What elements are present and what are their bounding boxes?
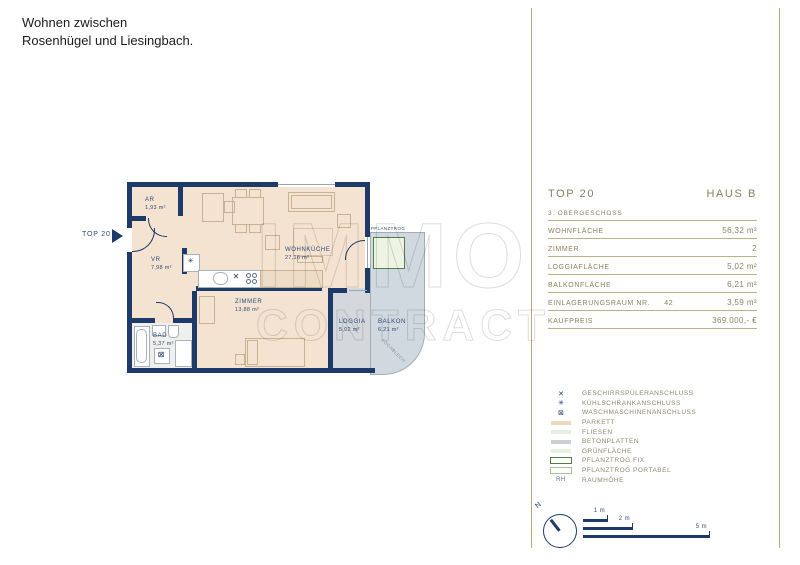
nightstand xyxy=(235,354,245,365)
legend-item-label: KÜHLSCHRANKANSCHLUSS xyxy=(582,400,681,407)
legend-item: BETONPLATTEN xyxy=(549,437,696,447)
wall xyxy=(130,216,146,221)
stove-icon xyxy=(252,279,257,284)
divider-line-left xyxy=(531,8,532,548)
side-table xyxy=(337,214,351,228)
legend-item: GRÜNFLÄCHE xyxy=(549,447,696,457)
north-label: N xyxy=(534,501,542,510)
legend-item-label: WASCHMASCHINENANSCHLUSS xyxy=(582,409,696,416)
info-row-label: BALKONFLÄCHE xyxy=(548,282,611,289)
unit-number: TOP 20 xyxy=(548,188,595,200)
info-row: BALKONFLÄCHE6,21 m² xyxy=(548,275,757,293)
stove-icon xyxy=(246,279,251,284)
scale-bar: 1 m xyxy=(583,519,608,522)
dining-table xyxy=(232,197,264,225)
wall xyxy=(178,185,183,216)
info-row-value: 369.000,- € xyxy=(712,316,757,325)
chair xyxy=(249,224,261,233)
parquet-swatch xyxy=(549,421,573,425)
room-name: ZIMMER xyxy=(235,299,262,305)
balcony-door-glass-line xyxy=(367,237,368,268)
info-row-value: 3,59 m² xyxy=(727,298,757,307)
legend-item: FLIESEN xyxy=(549,427,696,437)
scale-label: 2 m xyxy=(619,516,630,522)
room-area: 27,16 m² xyxy=(285,255,330,263)
counter-extension xyxy=(260,270,323,288)
scale-bar-group: 1 m2 m5 m xyxy=(583,505,723,550)
room-area: 5,02 m² xyxy=(339,327,366,335)
fridge-connection-icon: ✳ xyxy=(183,257,198,265)
info-row-label: KAUFPREIS xyxy=(548,318,593,325)
room-area: 1,93 m² xyxy=(145,205,166,213)
floor-label: 3. OBERGESCHOSS xyxy=(548,210,757,221)
legend-item-label: BETONPLATTEN xyxy=(582,438,639,445)
room-label-loggia: LOGGIA 5,02 m² xyxy=(339,318,366,335)
page-title: Wohnen zwischen Rosenhügel und Liesingba… xyxy=(22,14,193,50)
unit-marker-label: TOP 20 xyxy=(82,231,111,238)
unit-info-rows: WOHNFLÄCHE56,32 m²ZIMMER2LOGGIAFLÄCHE5,0… xyxy=(548,221,757,329)
legend-item-label: PARKETT xyxy=(582,419,615,426)
dishwasher-icon: ✕ xyxy=(229,272,243,281)
green-area-swatch xyxy=(549,449,573,453)
compass-icon xyxy=(543,514,577,548)
room-label-wohnkueche: WOHNKÜCHE 27,16 m² xyxy=(285,246,330,263)
chair xyxy=(235,224,247,233)
legend-item-label: GRÜNFLÄCHE xyxy=(582,448,632,455)
legend: ✕GESCHIRRSPÜLERANSCHLUSS✳KÜHLSCHRANKANSC… xyxy=(549,389,696,485)
compass-needle xyxy=(550,519,561,532)
legend-item: ✕GESCHIRRSPÜLERANSCHLUSS xyxy=(549,389,696,399)
room-name: BAD xyxy=(153,333,167,339)
wall xyxy=(173,318,192,323)
info-row-value: 2 xyxy=(752,244,757,253)
legend-item: PFLANZTROG PORTABEL xyxy=(549,466,696,476)
planter-box xyxy=(373,237,405,269)
room-label-balkon: BALKON 6,21 m² xyxy=(378,318,406,335)
info-row-label: LOGGIAFLÄCHE xyxy=(548,264,610,271)
window-glass-line xyxy=(278,184,335,185)
planter-fixed-swatch xyxy=(549,457,573,464)
wall xyxy=(127,368,375,373)
legend-item-label: FLIESEN xyxy=(582,429,613,436)
wardrobe xyxy=(199,296,215,324)
info-row: EINLAGERUNGSRAUM NR.423,59 m² xyxy=(548,293,757,311)
info-row-value: 6,21 m² xyxy=(727,280,757,289)
info-row-label: WOHNFLÄCHE xyxy=(548,228,604,235)
info-row-label-extra: 42 xyxy=(664,300,673,307)
legend-item: ⊠WASCHMASCHINENANSCHLUSS xyxy=(549,408,696,418)
scale-tick xyxy=(607,515,608,519)
unit-info-panel: TOP 20 HAUS B 3. OBERGESCHOSS WOHNFLÄCHE… xyxy=(548,188,757,329)
info-row: ZIMMER2 xyxy=(548,239,757,257)
legend-item: PARKETT xyxy=(549,418,696,428)
tiles-swatch xyxy=(549,430,573,434)
armchair xyxy=(265,235,280,250)
room-height-abbr: RH xyxy=(549,477,573,483)
legend-item: ✳KÜHLSCHRANKANSCHLUSS xyxy=(549,399,696,409)
legend-item-label: PFLANZTROG FIX xyxy=(582,457,645,464)
concrete-slabs-swatch xyxy=(549,440,573,444)
loggia-door-glass-line xyxy=(349,290,367,291)
room-label-ar: AR 1,93 m² xyxy=(145,196,166,213)
room-label-bad: BAD 5,37 m² xyxy=(153,332,174,349)
room-area: 5,37 m² xyxy=(153,341,174,349)
planter-label: PFLANZTROG xyxy=(371,226,405,231)
scale-bar: 5 m xyxy=(583,535,710,538)
info-row-value: 5,02 m² xyxy=(727,262,757,271)
fridge-connection-icon: ✳ xyxy=(549,399,573,407)
room-name: WOHNKÜCHE xyxy=(285,247,330,253)
pillow xyxy=(247,340,258,365)
divider-line-right xyxy=(779,8,780,548)
scale-bar: 2 m xyxy=(583,527,633,530)
room-area: 7,98 m² xyxy=(151,265,172,273)
stove-icon xyxy=(252,273,257,278)
wall xyxy=(127,182,132,228)
info-row: WOHNFLÄCHE56,32 m² xyxy=(548,221,757,239)
bathtub-inner xyxy=(136,329,147,363)
room-name: LOGGIA xyxy=(339,319,366,325)
scale-label: 1 m xyxy=(594,508,605,514)
info-row: KAUFPREIS369.000,- € xyxy=(548,311,757,329)
wall xyxy=(127,318,155,323)
wall xyxy=(365,182,370,237)
planter-portable-swatch xyxy=(549,467,573,474)
wall xyxy=(333,288,347,293)
stove-icon xyxy=(246,273,251,278)
legend-item: PFLANZTROG FIX xyxy=(549,456,696,466)
page: Wohnen zwischen Rosenhügel und Liesingba… xyxy=(0,0,800,565)
info-row-label: EINLAGERUNGSRAUM NR.42 xyxy=(548,300,673,307)
wall xyxy=(192,291,197,368)
wall xyxy=(328,288,333,368)
scale-label: 5 m xyxy=(696,524,707,530)
chair xyxy=(249,189,261,198)
floor-plan: PFLANZTROG LOCHBLECH xyxy=(125,180,427,380)
legend-item-label: GESCHIRRSPÜLERANSCHLUSS xyxy=(582,390,694,397)
entrance-arrow-icon xyxy=(112,229,123,243)
info-row-value: 56,32 m² xyxy=(722,226,757,235)
room-area: 13,88 m² xyxy=(235,307,262,315)
chair xyxy=(235,189,247,198)
sink xyxy=(213,272,228,285)
building-name: HAUS B xyxy=(706,188,757,200)
title-line-1: Wohnen zwischen xyxy=(22,15,127,30)
scale-tick xyxy=(709,531,710,535)
room-area: 6,21 m² xyxy=(378,327,406,335)
info-row-label: ZIMMER xyxy=(548,246,579,253)
legend-item-label: PFLANZTROG PORTABEL xyxy=(582,467,671,474)
info-row: LOGGIAFLÄCHE5,02 m² xyxy=(548,257,757,275)
desk xyxy=(202,193,224,222)
scale-tick xyxy=(632,523,633,527)
washing-machine-icon: ⊠ xyxy=(154,350,168,359)
title-line-2: Rosenhügel und Liesingbach. xyxy=(22,33,193,48)
washing-machine-connection-icon: ⊠ xyxy=(549,409,573,417)
sofa-cushion xyxy=(291,195,332,209)
room-label-vr: VR 7,98 m² xyxy=(151,256,172,273)
shower xyxy=(175,340,192,367)
room-name: VR xyxy=(151,257,161,263)
room-label-zimmer: ZIMMER 13,88 m² xyxy=(235,298,262,315)
dishwasher-connection-icon: ✕ xyxy=(549,390,573,398)
room-name: AR xyxy=(145,197,155,203)
legend-item: RHRAUMHÖHE xyxy=(549,475,696,485)
legend-item-label: RAUMHÖHE xyxy=(582,477,624,484)
wall xyxy=(127,252,132,373)
room-name: BALKON xyxy=(378,319,406,325)
